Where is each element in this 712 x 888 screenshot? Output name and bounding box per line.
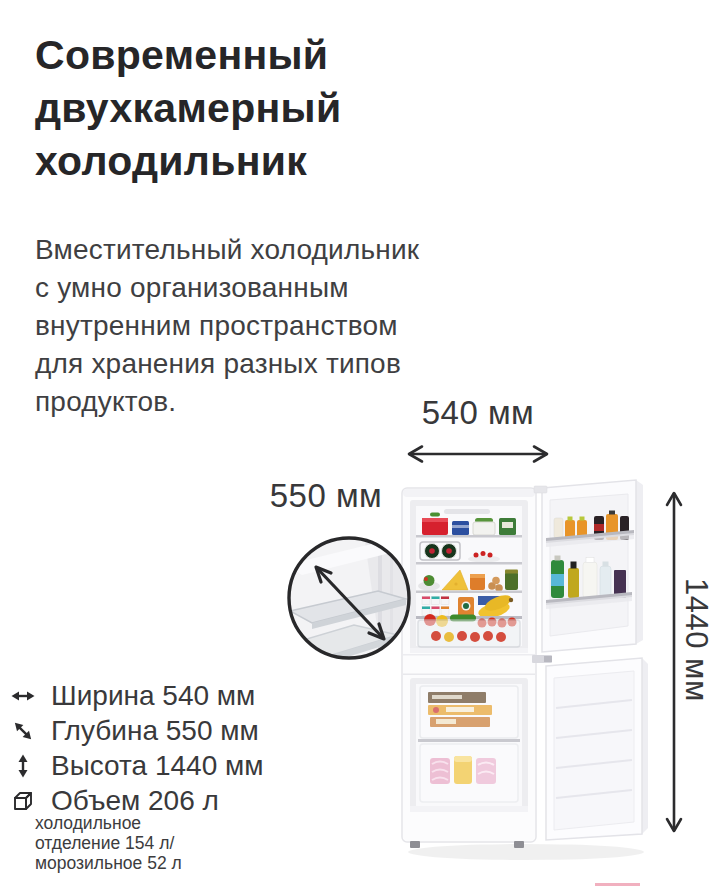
spec-item-width: Ширина 540 мм xyxy=(8,678,308,713)
spec-label: Ширина 540 мм xyxy=(51,680,255,712)
width-arrow-icon xyxy=(402,444,554,464)
depth-arrow-icon xyxy=(8,717,38,745)
depth-dimension-label: 550 мм xyxy=(258,477,394,515)
pink-accent-line xyxy=(595,883,640,886)
spec-label: Высота 1440 мм xyxy=(51,750,264,782)
crisper-drawer xyxy=(410,614,528,653)
page-title: Современный двухкамерный холодильник xyxy=(35,29,475,188)
width-arrow-icon xyxy=(8,682,38,710)
infographic-root: { "title": { "text": "Современный\nдвухк… xyxy=(0,0,712,888)
spec-label: Объем 206 л xyxy=(51,785,219,817)
capacity-note: холодильное отделение 154 л/ морозильное… xyxy=(35,813,275,873)
fridge-interior-photo xyxy=(286,535,412,661)
spec-item-depth: Глубина 550 мм xyxy=(8,713,308,748)
fridge-image xyxy=(396,478,662,880)
fridge-foot xyxy=(514,841,524,848)
product-description: Вместительный холодильник с умно организ… xyxy=(35,231,515,421)
height-arrow-icon xyxy=(664,486,684,838)
fridge-foot xyxy=(410,841,420,848)
specs-list: Ширина 540 мм Глубина 550 мм Высота 1440… xyxy=(8,678,308,818)
width-dimension-label: 540 мм xyxy=(402,394,554,432)
freezer-drawers xyxy=(410,678,528,812)
volume-cube-icon xyxy=(8,787,38,815)
fridge-door-open xyxy=(542,480,643,652)
freezer-door-open xyxy=(546,658,648,840)
depth-inset-circle xyxy=(286,535,412,661)
spec-item-height: Высота 1440 мм xyxy=(8,748,308,783)
height-arrow-icon xyxy=(8,752,38,780)
spec-label: Глубина 550 мм xyxy=(51,715,259,747)
